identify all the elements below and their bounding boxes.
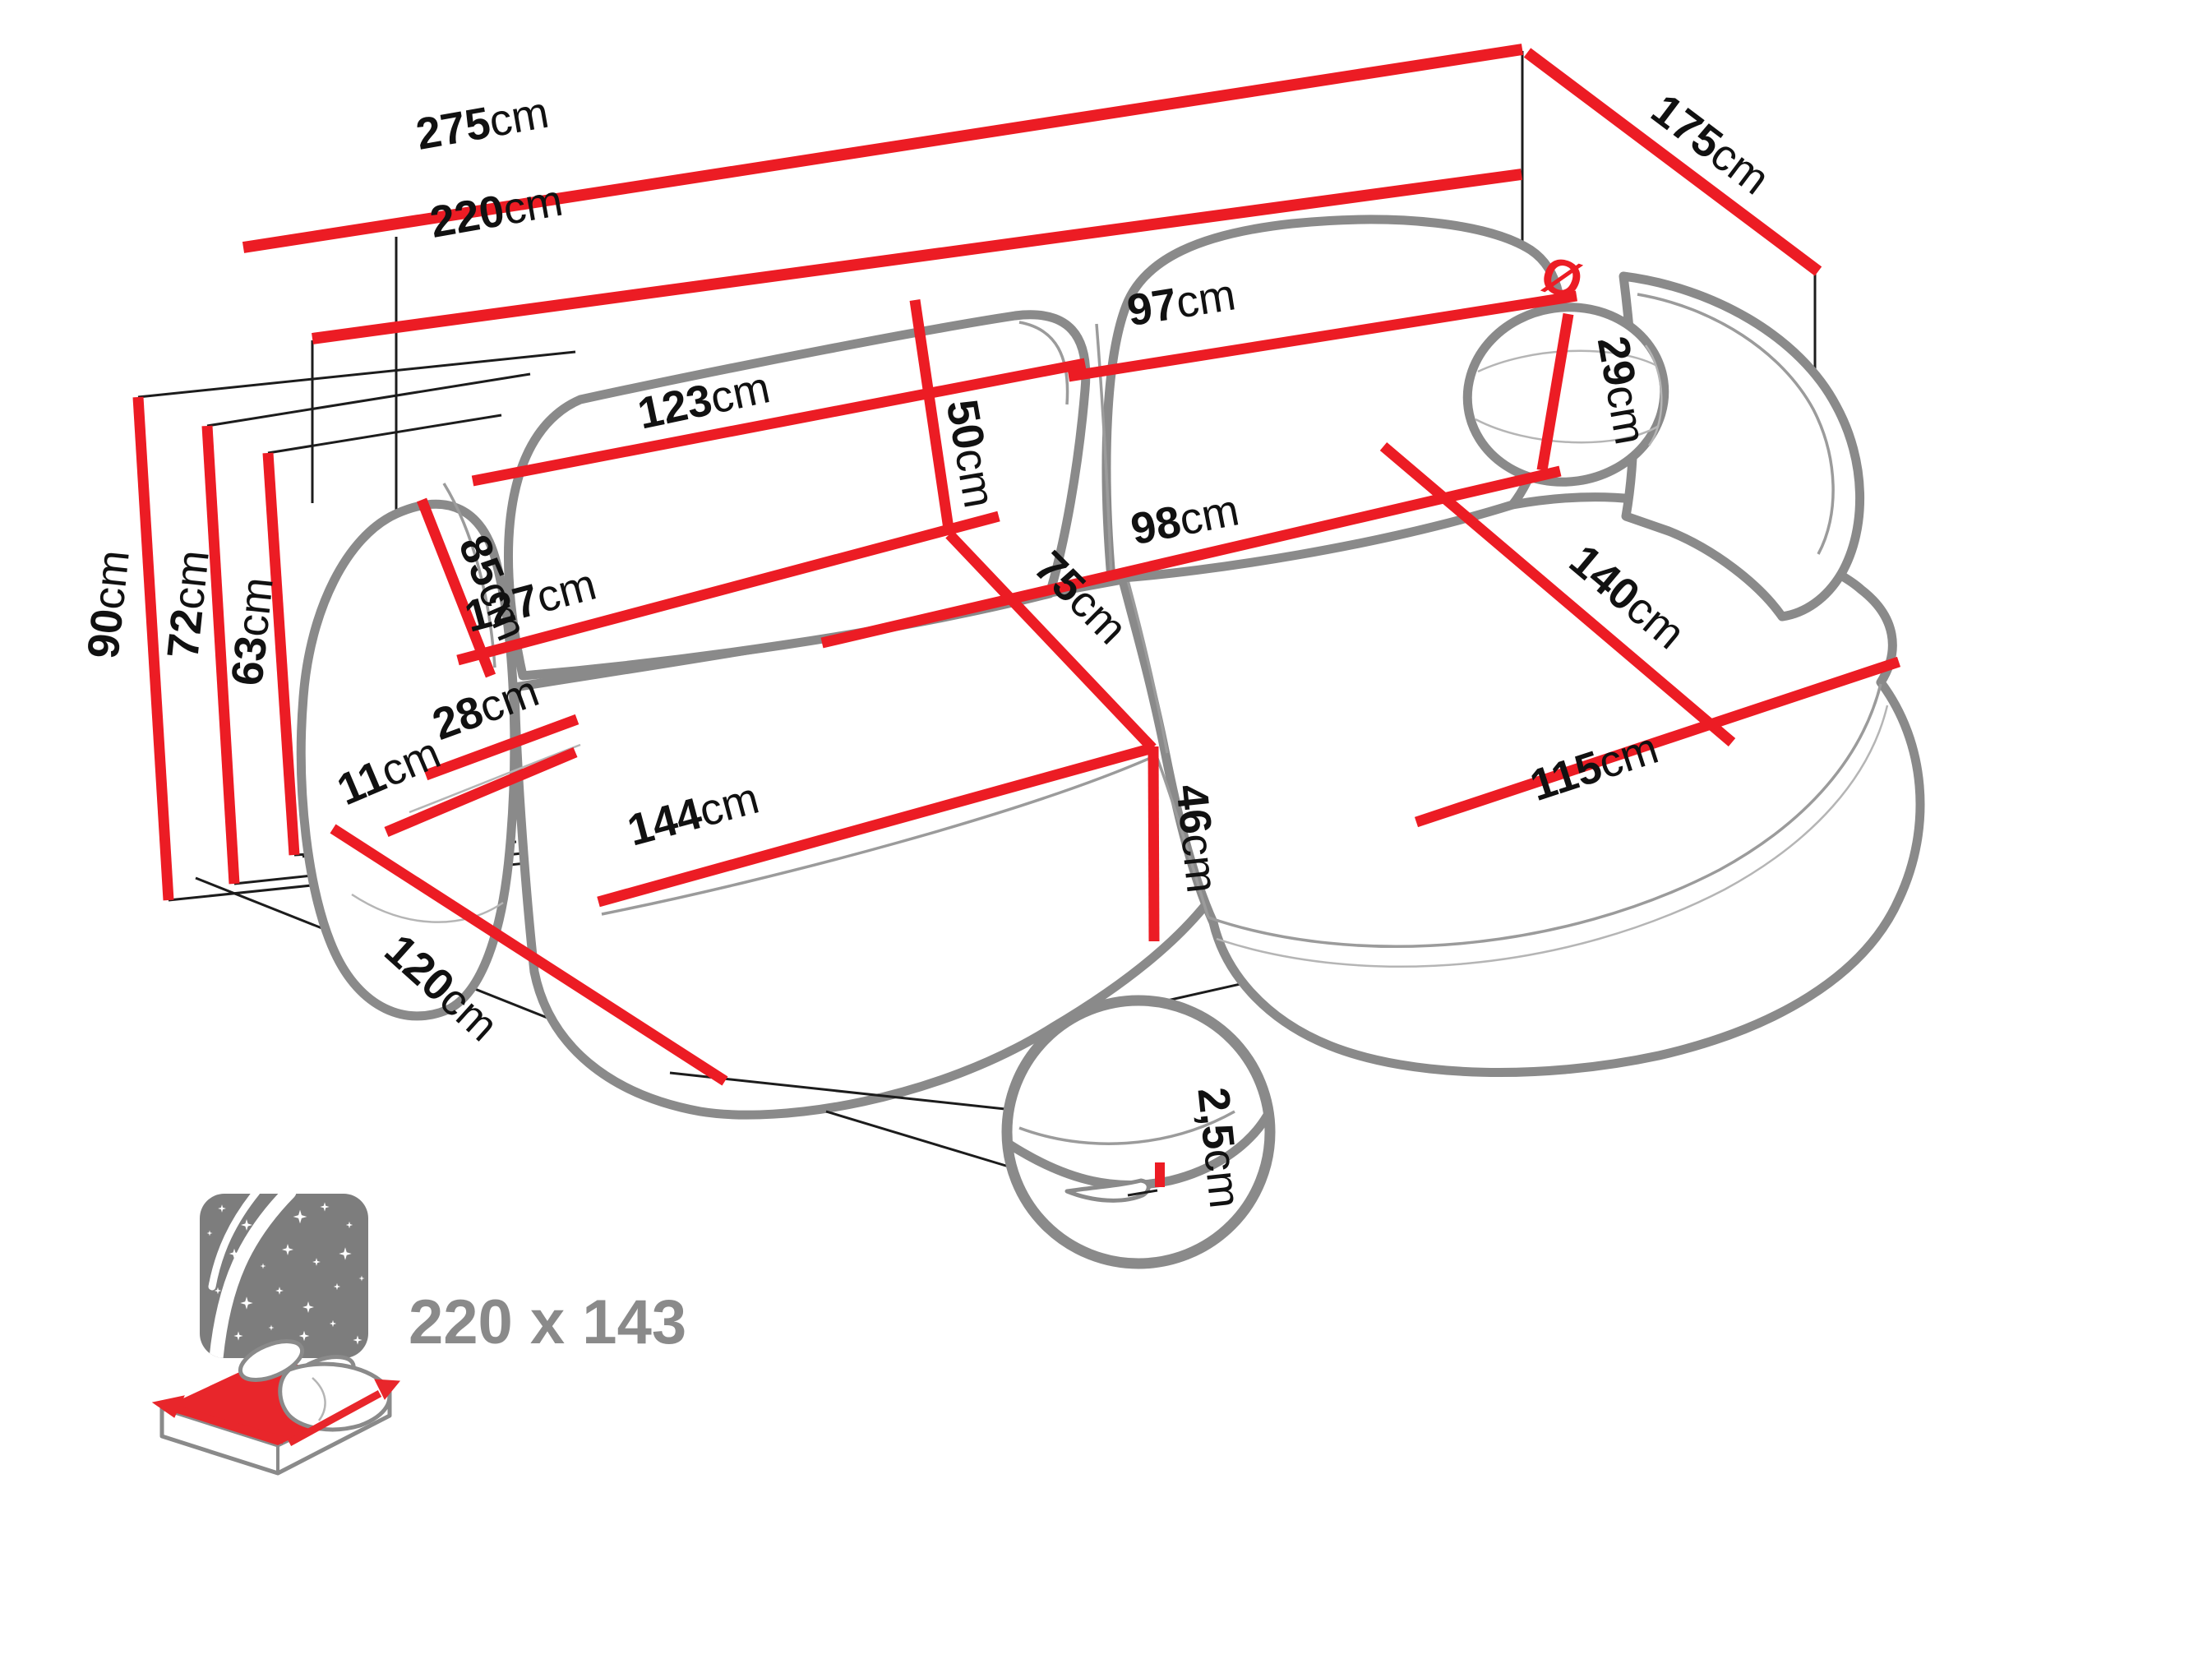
leader-90-top <box>138 352 575 397</box>
magnifier-leader-2 <box>826 1111 1017 1169</box>
dim-label-275: 275cm <box>413 88 552 159</box>
dim-label-220: 220cm <box>427 176 566 247</box>
sofa-dimension-diagram: { "dims": { "d275": {"v":"275","u":"cm"}… <box>0 0 2212 1659</box>
sofa-drawing <box>301 220 1920 1115</box>
dim-label-72: 72cm <box>158 548 218 661</box>
sleeping-dimensions-label: 220 x 143 <box>409 1287 686 1357</box>
leader-63-top <box>268 415 501 453</box>
dim-label-63: 63cm <box>222 575 282 688</box>
diagram-canvas: 275cm 220cm 175cm 90cm 72cm 63cm 123cm 5… <box>0 0 2212 1659</box>
sleeping-area-icon: 220 x 143 <box>153 1192 686 1473</box>
dim-line-46 <box>1153 746 1154 941</box>
dim-label-90: 90cm <box>78 548 138 661</box>
